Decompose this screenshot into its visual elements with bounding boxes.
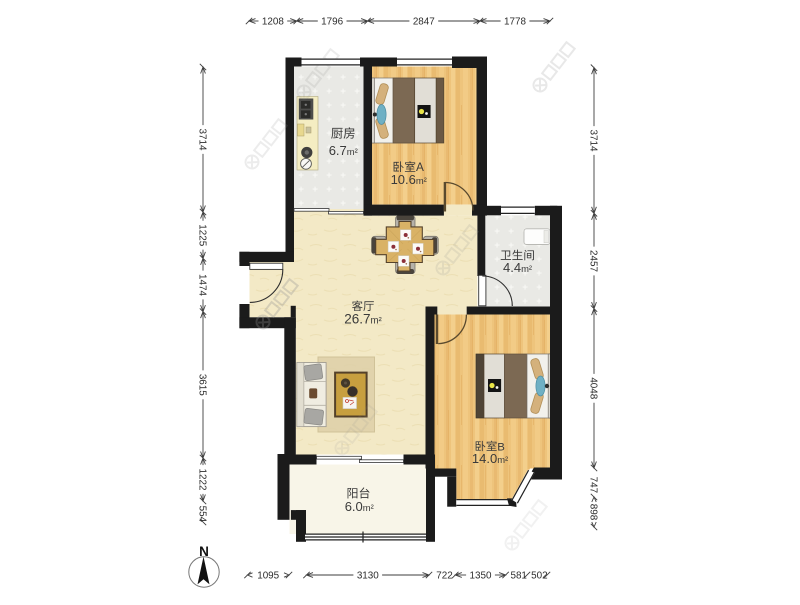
svg-text:898: 898 [588,504,599,521]
svg-text:3714: 3714 [197,129,208,151]
svg-text:4.4m²: 4.4m² [503,260,532,275]
svg-text:N: N [199,544,209,559]
svg-text:1225: 1225 [197,224,208,246]
svg-text:554: 554 [197,506,208,523]
svg-text:1778: 1778 [504,16,526,27]
svg-text:1474: 1474 [197,274,208,296]
svg-text:10.6m²: 10.6m² [391,172,427,187]
svg-text:1095: 1095 [257,570,279,581]
svg-text:1796: 1796 [321,16,343,27]
svg-text:3714: 3714 [588,130,599,152]
svg-text:6.7m²: 6.7m² [329,143,358,158]
svg-text:502: 502 [531,570,547,581]
svg-text:3615: 3615 [197,374,208,396]
svg-text:6.0m²: 6.0m² [345,499,374,514]
svg-text:2847: 2847 [413,16,435,27]
svg-text:3130: 3130 [357,570,379,581]
svg-text:4048: 4048 [588,377,599,399]
svg-text:B: B [497,441,505,453]
svg-text:A: A [416,160,424,174]
svg-text:1350: 1350 [470,570,492,581]
svg-text:747: 747 [588,477,599,493]
svg-text:581: 581 [510,570,527,581]
svg-text:2457: 2457 [588,250,599,272]
svg-text:1222: 1222 [197,469,208,491]
svg-text:722: 722 [436,570,452,581]
svg-text:1208: 1208 [262,16,284,27]
svg-text:14.0m²: 14.0m² [472,451,508,466]
